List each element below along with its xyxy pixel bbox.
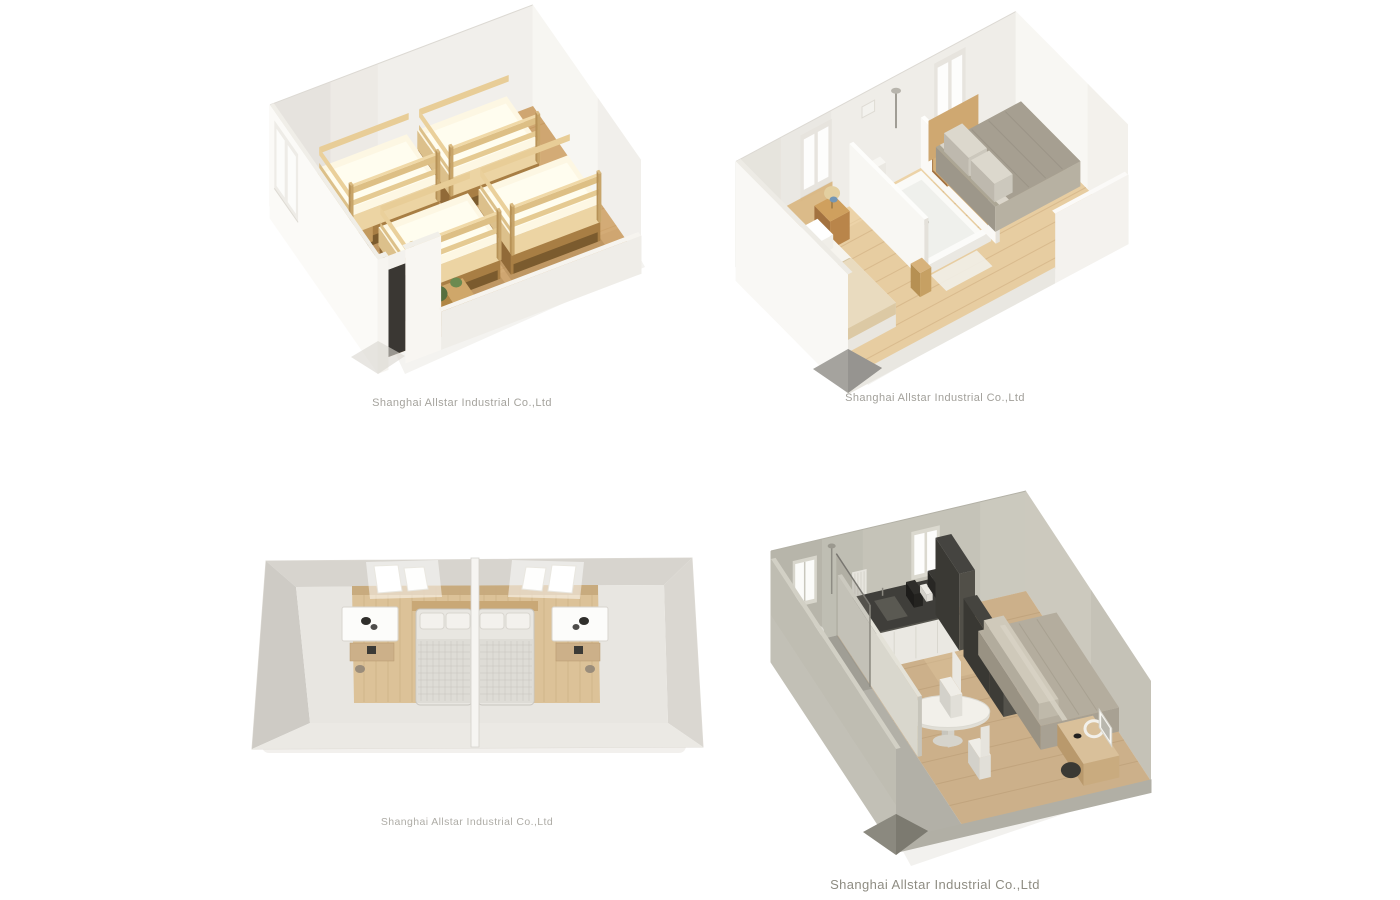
pillow <box>506 613 530 629</box>
watermark-caption: Shanghai Allstar Industrial Co.,Ltd <box>785 877 1085 892</box>
floorplan-render-two-bedroom-bath <box>718 0 1138 400</box>
wall-tv-unit <box>552 607 608 641</box>
window <box>914 533 924 575</box>
floorplan-render-twin-rooms-top <box>240 545 710 760</box>
ceiling-light <box>522 567 546 591</box>
pillow <box>480 613 504 629</box>
door-opening <box>389 263 406 357</box>
window <box>288 145 296 214</box>
picture <box>361 617 371 625</box>
divider-wall <box>471 558 479 747</box>
ceiling-light <box>404 567 428 591</box>
watermark-caption: Shanghai Allstar Industrial Co.,Ltd <box>312 397 612 409</box>
window <box>927 530 937 572</box>
plant <box>450 277 462 287</box>
watermark-caption: Shanghai Allstar Industrial Co.,Ltd <box>317 816 617 828</box>
ceiling-light <box>548 565 576 593</box>
window <box>818 126 829 182</box>
pillow <box>420 613 444 629</box>
wall-tv-unit <box>342 607 398 641</box>
window <box>804 134 815 190</box>
stool <box>1061 762 1081 778</box>
picture <box>579 617 589 625</box>
floorplan-render-bunk-dorm <box>255 2 655 382</box>
ceiling-light <box>374 565 402 593</box>
shower-head <box>828 544 836 549</box>
floorplan-render-studio <box>726 466 1156 878</box>
window <box>952 55 963 111</box>
pillow <box>446 613 470 629</box>
product-render-sheet: { "page": { "background": "#ffffff" }, "… <box>0 0 1400 900</box>
window <box>277 129 285 198</box>
window <box>938 62 949 118</box>
shower-head <box>891 88 901 94</box>
watermark-caption: Shanghai Allstar Industrial Co.,Ltd <box>785 392 1085 404</box>
